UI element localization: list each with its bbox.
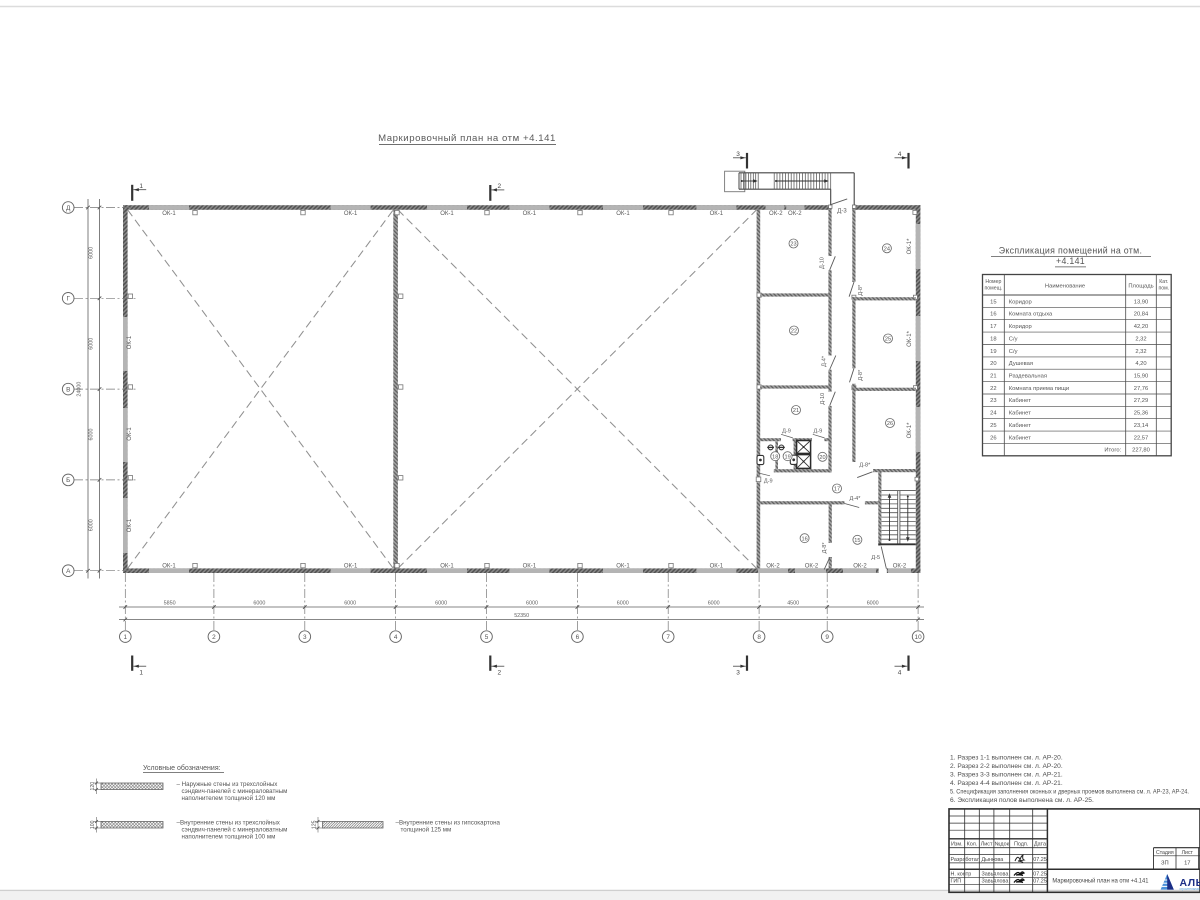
svg-text:Д-8*: Д-8*: [858, 369, 864, 381]
svg-text:125: 125: [311, 820, 317, 829]
svg-text:13,90: 13,90: [1134, 299, 1149, 305]
svg-text:5850: 5850: [164, 601, 176, 607]
svg-text:Дынкова: Дынкова: [982, 857, 1004, 863]
svg-text:Комната приема пищи: Комната приема пищи: [1009, 386, 1069, 392]
svg-text:25,36: 25,36: [1134, 411, 1149, 417]
svg-text:Маркировочный план на отм +4.1: Маркировочный план на отм +4.141: [1052, 877, 1148, 885]
svg-text:Душевая: Душевая: [1009, 361, 1033, 367]
svg-text:ГИП: ГИП: [951, 878, 962, 884]
svg-text:С/у: С/у: [1009, 336, 1018, 342]
svg-text:Д: Д: [66, 205, 71, 212]
svg-text:Кабинет: Кабинет: [1009, 435, 1031, 441]
svg-text:Условные обозначения:: Условные обозначения:: [143, 764, 221, 772]
svg-text:6000: 6000: [617, 601, 629, 607]
svg-text:6000: 6000: [89, 338, 95, 350]
svg-text:Лист: Лист: [981, 842, 993, 848]
svg-text:18: 18: [772, 454, 778, 460]
svg-text:ОК-1: ОК-1: [162, 563, 176, 569]
svg-text:6000: 6000: [89, 519, 95, 531]
svg-text:С/у: С/у: [1009, 349, 1018, 355]
svg-text:Площадь: Площадь: [1128, 283, 1153, 289]
svg-text:–Внутренние стены из гипсокарт: –Внутренние стены из гипсокартона: [396, 819, 501, 826]
svg-text:07.25: 07.25: [1033, 871, 1047, 877]
svg-text:Завьялова: Завьялова: [982, 878, 1009, 884]
svg-text:ОК-1: ОК-1: [523, 563, 537, 569]
svg-text:–Внутренние стены из трехслойн: –Внутренние стены из трехслойных: [177, 819, 281, 826]
svg-text:Дата: Дата: [1034, 842, 1046, 848]
svg-text:120: 120: [90, 782, 96, 791]
svg-text:6. Экспликация полов выполнена: 6. Экспликация полов выполнена см. л. АР…: [950, 797, 1094, 804]
svg-text:24: 24: [990, 411, 997, 417]
svg-text:толщиной 125 мм: толщиной 125 мм: [401, 826, 452, 833]
svg-text:Наименование: Наименование: [1045, 283, 1085, 289]
svg-text:6: 6: [576, 634, 580, 641]
svg-text:Лист: Лист: [1182, 850, 1194, 856]
svg-text:ОК-2: ОК-2: [805, 563, 819, 569]
svg-text:52350: 52350: [514, 613, 529, 619]
svg-text:Экспликация помещений на отм.: Экспликация помещений на отм.: [999, 246, 1142, 256]
svg-text:Д-9: Д-9: [782, 428, 791, 434]
svg-text:24000: 24000: [77, 382, 83, 397]
svg-text:ОК-1: ОК-1: [344, 211, 358, 217]
svg-text:26: 26: [990, 435, 996, 441]
svg-text:Д-8*: Д-8*: [822, 542, 828, 554]
svg-text:6000: 6000: [253, 601, 265, 607]
svg-text:Д-3: Д-3: [837, 209, 847, 215]
svg-text:наполнителем толщиной 120 мм: наполнителем толщиной 120 мм: [182, 795, 276, 802]
svg-text:07.25: 07.25: [1033, 857, 1047, 863]
svg-text:19: 19: [990, 349, 996, 355]
svg-text:– Наружные стены из трехслойны: – Наружные стены из трехслойных: [177, 781, 279, 788]
svg-text:Д-10: Д-10: [820, 393, 826, 405]
svg-text:5: 5: [485, 634, 489, 641]
svg-text:15,90: 15,90: [1134, 374, 1149, 380]
svg-text:4: 4: [394, 634, 398, 641]
svg-text:ОК-1: ОК-1: [710, 563, 724, 569]
svg-text:7: 7: [666, 634, 670, 641]
svg-text:Д-10: Д-10: [820, 257, 826, 269]
svg-text:5. Спецификация заполнения око: 5. Спецификация заполнения оконных и две…: [950, 789, 1189, 796]
svg-text:Разработал: Разработал: [951, 857, 980, 863]
svg-text:6000: 6000: [89, 429, 95, 441]
svg-text:07.25: 07.25: [1033, 878, 1047, 884]
svg-text:Кол.: Кол.: [967, 842, 978, 848]
svg-text:Коридор: Коридор: [1009, 299, 1032, 305]
svg-text:Кабинет: Кабинет: [1009, 411, 1031, 417]
svg-text:4: 4: [898, 151, 902, 158]
svg-text:4500: 4500: [787, 601, 799, 607]
svg-text:6000: 6000: [708, 601, 720, 607]
svg-text:Кабинет: Кабинет: [1009, 423, 1031, 429]
svg-text:Н. контр: Н. контр: [951, 871, 972, 877]
svg-text:22: 22: [990, 386, 996, 392]
svg-text:22: 22: [791, 329, 797, 335]
svg-text:пом.: пом.: [1158, 286, 1169, 292]
svg-text:2,32: 2,32: [1135, 336, 1146, 342]
svg-text:Кабинет: Кабинет: [1009, 398, 1031, 404]
svg-text:25: 25: [885, 337, 891, 343]
svg-text:23,14: 23,14: [1134, 423, 1149, 429]
svg-text:3. Разрез 3-3 выполнен см. л.: 3. Разрез 3-3 выполнен см. л. АР-21.: [950, 772, 1063, 779]
svg-text:3: 3: [303, 634, 307, 641]
svg-text:№док: №док: [995, 842, 1010, 848]
svg-text:2: 2: [497, 183, 501, 190]
svg-text:16: 16: [990, 312, 996, 318]
svg-text:ОК-2: ОК-2: [766, 563, 780, 569]
svg-text:8: 8: [757, 634, 761, 641]
svg-text:ОК-1: ОК-1: [616, 211, 630, 217]
svg-text:6000: 6000: [867, 601, 879, 607]
svg-text:1. Разрез 1-1 выполнен см. л.: 1. Разрез 1-1 выполнен см. л. АР-20.: [950, 755, 1063, 762]
svg-text:ОК-2: ОК-2: [769, 211, 783, 217]
svg-text:2: 2: [212, 634, 216, 641]
svg-text:строительная компания: строительная компания: [1180, 887, 1200, 891]
svg-text:Д-4*: Д-4*: [822, 355, 828, 367]
svg-text:сэндвич-панелей с минераловатн: сэндвич-панелей с минераловатным: [182, 788, 288, 795]
svg-text:ОК-1: ОК-1: [616, 563, 630, 569]
svg-text:42,20: 42,20: [1134, 324, 1149, 330]
svg-text:сэндвич-панелей с минераловатн: сэндвич-панелей с минераловатным: [182, 826, 288, 833]
svg-text:1: 1: [139, 183, 143, 190]
svg-text:ОК-2: ОК-2: [893, 563, 907, 569]
svg-text:3: 3: [736, 670, 740, 677]
svg-text:Б: Б: [66, 477, 70, 484]
svg-text:ОК-1: ОК-1: [127, 335, 133, 349]
svg-text:Д-5: Д-5: [871, 555, 880, 561]
svg-text:3: 3: [736, 151, 740, 158]
svg-text:помещ.: помещ.: [984, 286, 1002, 292]
svg-text:227,80: 227,80: [1132, 448, 1150, 454]
svg-text:В: В: [66, 386, 70, 393]
svg-text:20,84: 20,84: [1134, 312, 1149, 318]
svg-text:27,76: 27,76: [1134, 386, 1149, 392]
svg-text:Кат.: Кат.: [1159, 279, 1168, 285]
svg-text:ОК-1: ОК-1: [162, 211, 176, 217]
svg-text:Д-4*: Д-4*: [850, 496, 862, 502]
svg-text:Стадия: Стадия: [1156, 850, 1174, 856]
svg-text:4,20: 4,20: [1135, 361, 1146, 367]
svg-text:25: 25: [990, 423, 996, 429]
svg-text:22,57: 22,57: [1134, 435, 1149, 441]
svg-text:18: 18: [990, 336, 996, 342]
svg-text:6000: 6000: [435, 601, 447, 607]
svg-text:24: 24: [884, 246, 890, 252]
svg-text:Маркировочный план на отм +4.1: Маркировочный план на отм +4.141: [378, 133, 556, 144]
svg-text:6000: 6000: [526, 601, 538, 607]
svg-text:23: 23: [990, 398, 996, 404]
svg-text:21: 21: [990, 374, 996, 380]
svg-text:4. Разрез 4-4 выполнен см. л.: 4. Разрез 4-4 выполнен см. л. АР-21.: [950, 780, 1063, 787]
svg-text:Д-8*: Д-8*: [859, 463, 871, 469]
svg-text:Раздевальная: Раздевальная: [1009, 374, 1047, 380]
svg-text:ОК-1: ОК-1: [344, 563, 358, 569]
svg-text:17: 17: [990, 324, 996, 330]
svg-text:ОК-1*: ОК-1*: [907, 422, 913, 438]
svg-text:Коридор: Коридор: [1009, 324, 1032, 330]
svg-text:Номер: Номер: [985, 279, 1001, 285]
svg-text:ОК-1: ОК-1: [127, 427, 133, 441]
svg-text:А: А: [66, 568, 71, 575]
svg-text:26: 26: [887, 421, 893, 427]
svg-text:9: 9: [825, 634, 829, 641]
svg-text:17: 17: [834, 487, 840, 493]
svg-text:Д-8*: Д-8*: [858, 284, 864, 296]
svg-text:2. Разрез 2-2 выполнен см. л.: 2. Разрез 2-2 выполнен см. л. АР-20.: [950, 763, 1063, 770]
svg-text:2: 2: [497, 670, 501, 677]
svg-text:Д-9: Д-9: [764, 478, 773, 484]
svg-text:ОК-1*: ОК-1*: [907, 330, 913, 346]
svg-text:Завьялова: Завьялова: [982, 871, 1009, 877]
svg-text:6000: 6000: [344, 601, 356, 607]
svg-text:Г: Г: [66, 296, 70, 303]
svg-text:+4.141: +4.141: [1056, 256, 1085, 266]
svg-text:ОК-1: ОК-1: [523, 211, 537, 217]
svg-text:23: 23: [790, 242, 796, 248]
svg-text:10: 10: [915, 634, 923, 641]
svg-text:1: 1: [139, 670, 143, 677]
svg-text:6000: 6000: [89, 247, 95, 259]
svg-text:ОК-1: ОК-1: [127, 518, 133, 532]
svg-text:Подп.: Подп.: [1014, 842, 1028, 848]
svg-text:ОК-2: ОК-2: [788, 211, 802, 217]
svg-text:Изм.: Изм.: [951, 842, 963, 848]
svg-text:20: 20: [819, 455, 825, 461]
svg-text:ОК-1: ОК-1: [710, 211, 724, 217]
svg-text:наполнителем толщиной 100 мм: наполнителем толщиной 100 мм: [182, 833, 276, 840]
svg-text:2,32: 2,32: [1135, 349, 1146, 355]
svg-text:1: 1: [124, 634, 128, 641]
svg-text:21: 21: [793, 408, 799, 414]
svg-text:ЗП: ЗП: [1161, 861, 1169, 867]
svg-text:Итого:: Итого:: [1104, 448, 1121, 454]
svg-text:ОК-1: ОК-1: [440, 211, 454, 217]
svg-text:Комната отдыха: Комната отдыха: [1009, 312, 1053, 318]
svg-text:27,29: 27,29: [1134, 398, 1149, 404]
svg-text:15: 15: [990, 299, 996, 305]
svg-text:16: 16: [801, 536, 807, 542]
svg-text:17: 17: [1184, 861, 1190, 867]
svg-text:ОК-1: ОК-1: [440, 563, 454, 569]
svg-text:19: 19: [784, 454, 790, 460]
svg-text:100: 100: [90, 820, 96, 829]
svg-text:4: 4: [898, 670, 902, 677]
svg-text:20: 20: [990, 361, 996, 367]
svg-text:Д-9: Д-9: [814, 428, 823, 434]
svg-text:15: 15: [854, 538, 860, 544]
svg-text:ОК-1*: ОК-1*: [907, 238, 913, 254]
svg-text:ОК-2: ОК-2: [853, 563, 867, 569]
